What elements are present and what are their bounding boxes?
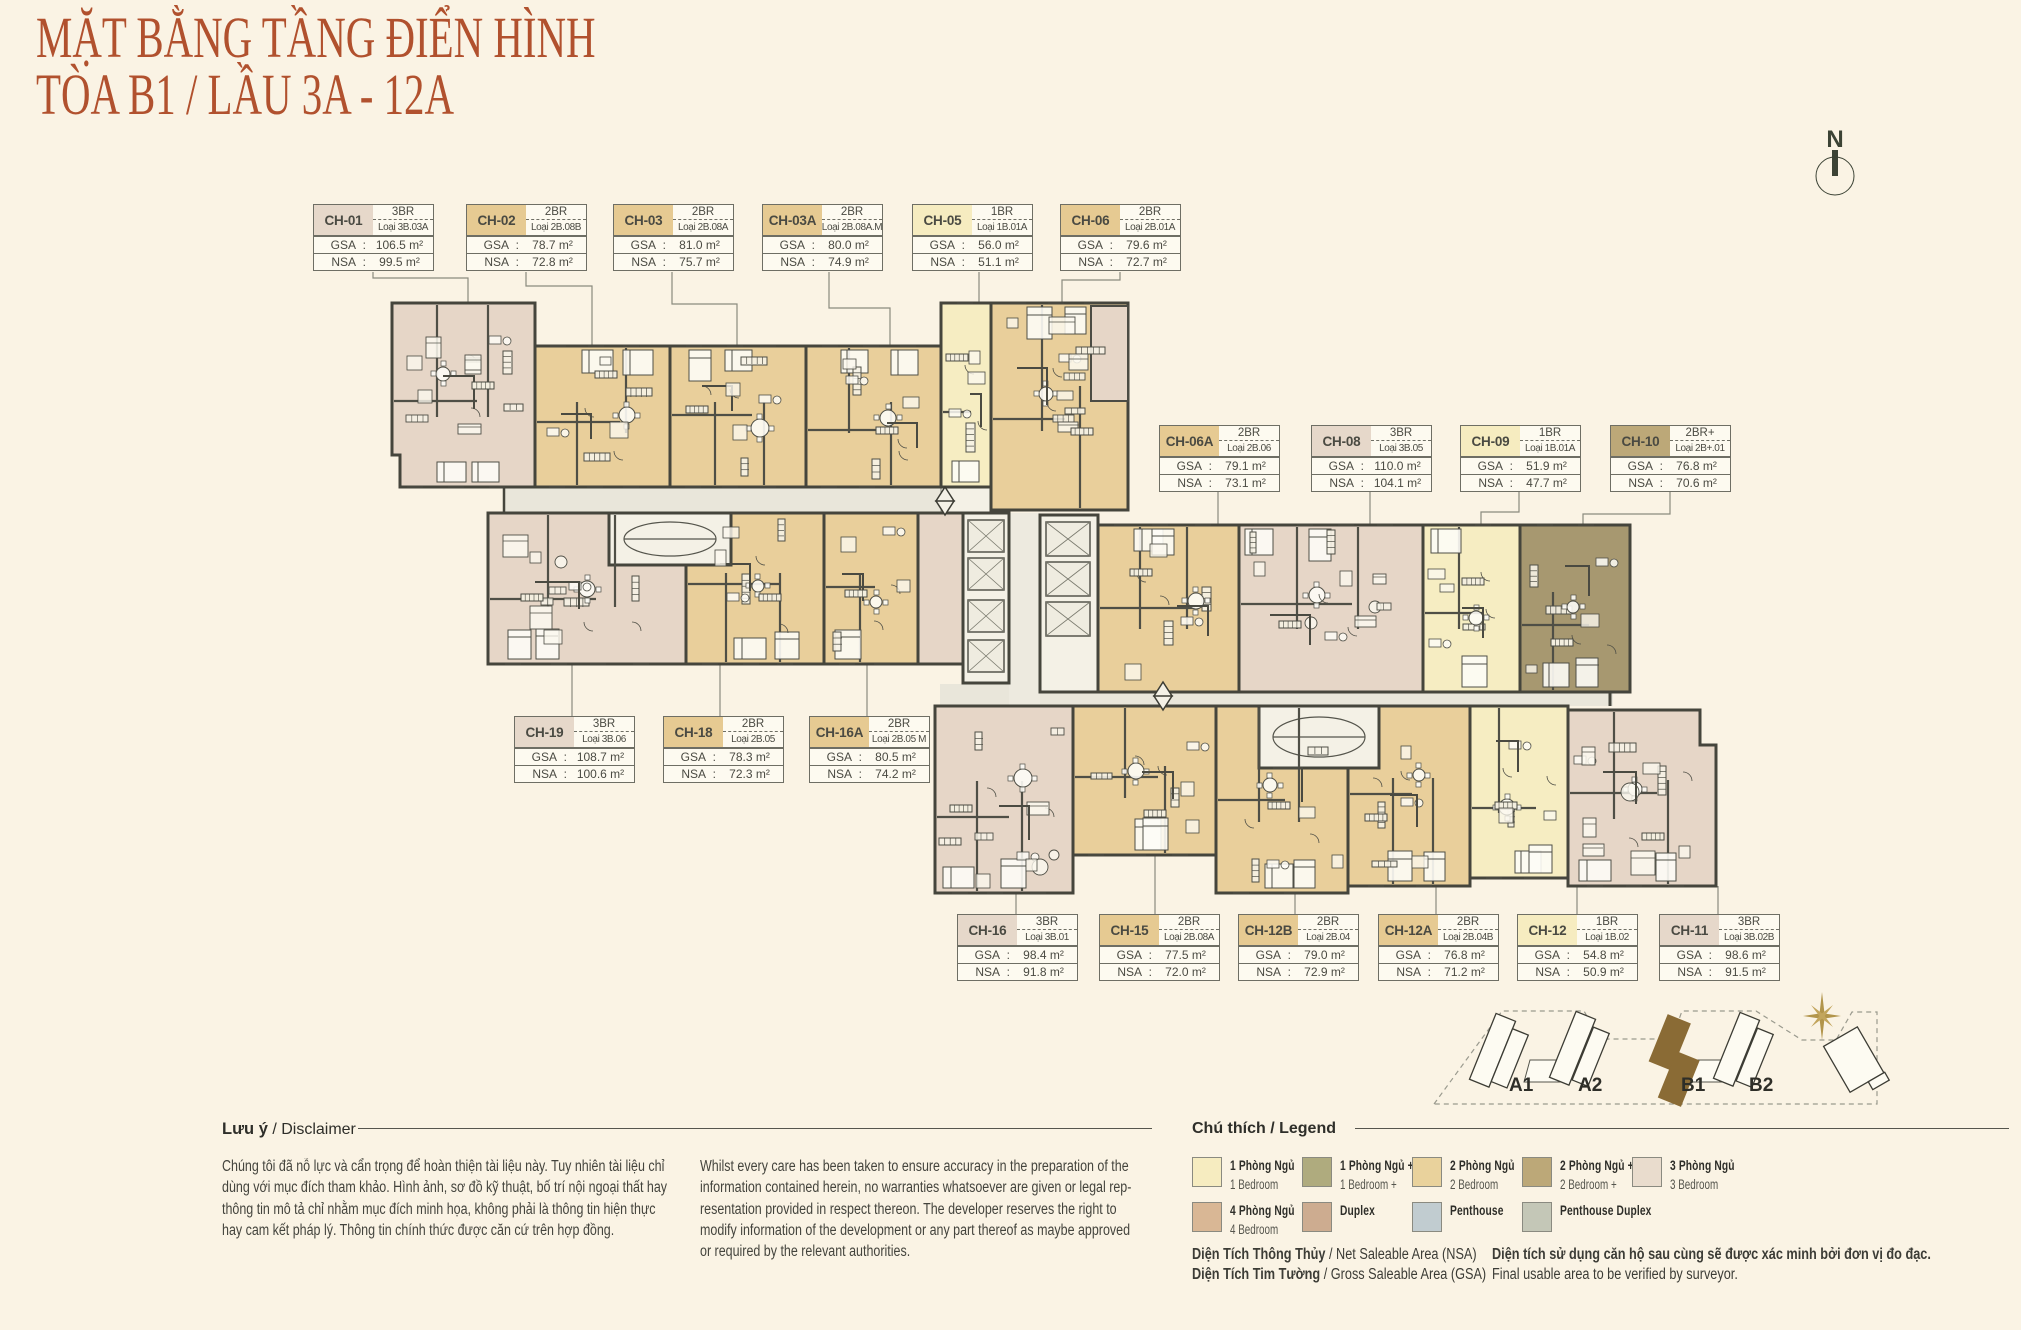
svg-text:B2: B2 — [1749, 1075, 1773, 1096]
svg-text:B1: B1 — [1681, 1075, 1706, 1096]
svg-text:A2: A2 — [1578, 1075, 1602, 1096]
svg-text:A1: A1 — [1509, 1075, 1534, 1096]
svg-text:N: N — [1826, 126, 1843, 153]
